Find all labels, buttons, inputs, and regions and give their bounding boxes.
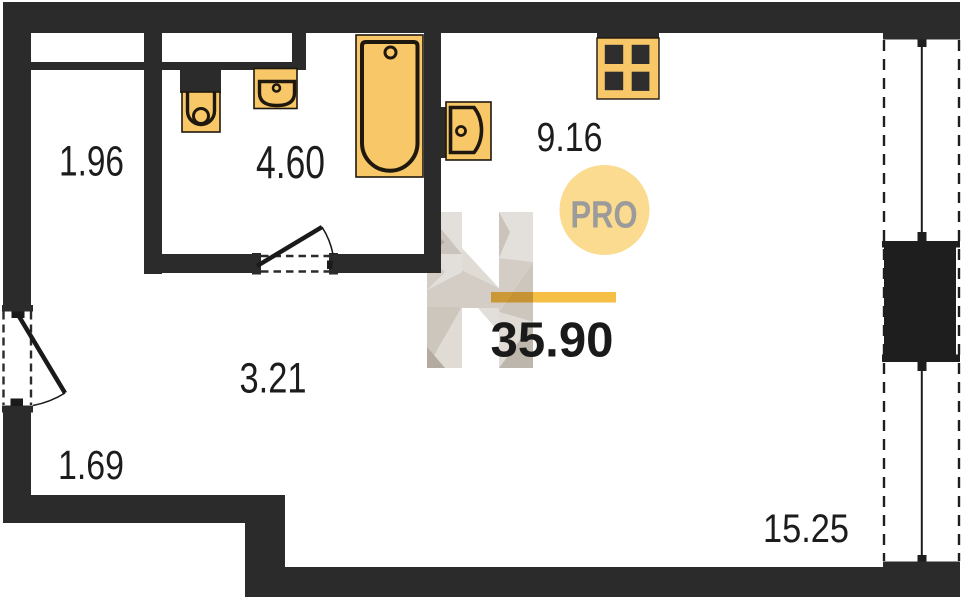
svg-text:9.16: 9.16 (537, 114, 603, 160)
svg-text:1.69: 1.69 (58, 442, 124, 488)
svg-text:35.90: 35.90 (491, 314, 614, 368)
svg-text:PRO: PRO (571, 195, 638, 237)
svg-text:1.96: 1.96 (59, 138, 124, 186)
svg-text:15.25: 15.25 (763, 507, 849, 551)
svg-text:4.60: 4.60 (256, 136, 325, 188)
svg-text:3.21: 3.21 (240, 355, 307, 403)
